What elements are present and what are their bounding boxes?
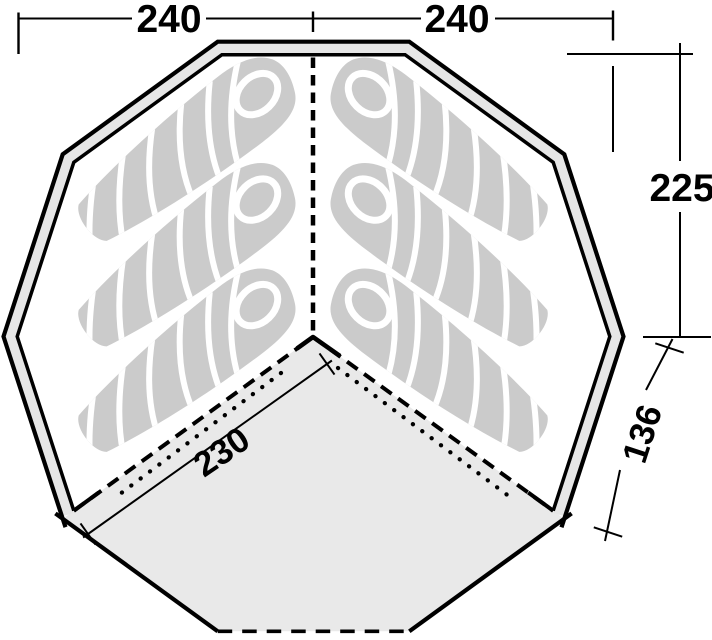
svg-text:240: 240	[424, 0, 489, 41]
svg-text:225: 225	[649, 167, 712, 210]
svg-text:240: 240	[136, 0, 201, 41]
